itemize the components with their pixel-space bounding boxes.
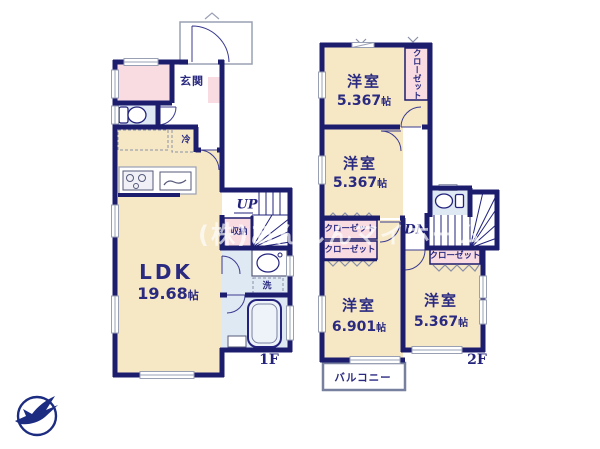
window [319, 156, 326, 184]
toilet-icon-1f [119, 107, 146, 123]
window [112, 70, 119, 98]
closet-label-3: クローゼット [429, 252, 480, 261]
window [124, 59, 158, 66]
balcony-label: バルコニー [334, 373, 391, 384]
bedroom-bottom-left-name: 洋室 [342, 299, 376, 314]
closet-label-vertical: クローゼット [412, 49, 421, 100]
ldk-size-number: 19.68 [137, 284, 188, 303]
window [287, 256, 294, 276]
stairs-up-label: UP [236, 199, 257, 212]
ldk-size: 19.68帖 [137, 286, 199, 302]
size-unit: 帖 [376, 323, 386, 334]
entrance-porch [180, 22, 252, 64]
vent-mark [352, 43, 374, 48]
floor-plan-2f [319, 37, 500, 390]
bedroom-top-name: 洋室 [347, 75, 381, 90]
stairs-down-label: DN [404, 224, 427, 237]
bedroom-bottom-left-size: 6.901帖 [332, 320, 386, 334]
shoe-closet-room [115, 62, 172, 103]
bedroom-middle-name: 洋室 [343, 157, 377, 172]
window [287, 306, 294, 340]
window [319, 296, 326, 332]
ldk-room [115, 127, 222, 375]
bedroom-middle-size: 5.367帖 [333, 176, 387, 190]
floor-tag-1f: 1F [259, 353, 279, 367]
bedroom-middle [322, 127, 403, 218]
size-number: 5.367 [414, 314, 458, 330]
ldk-size-unit: 帖 [188, 289, 199, 302]
window [112, 296, 119, 333]
window [480, 276, 487, 298]
window [112, 106, 119, 124]
floor-tag-2f: 2F [467, 353, 487, 367]
closet-label-2: クローゼット [324, 246, 375, 255]
window [480, 300, 487, 324]
window [412, 347, 462, 354]
storage-label: 収納 [230, 228, 247, 237]
window [319, 72, 326, 98]
vanity-sink-icon [252, 250, 287, 276]
toilet-door-swing [158, 107, 176, 125]
size-unit: 帖 [458, 318, 468, 329]
size-unit: 帖 [377, 179, 387, 190]
window [112, 205, 119, 237]
floor-plan-drawing [0, 0, 600, 449]
ldk-name: LDK [139, 262, 193, 282]
bird-icon [15, 396, 58, 424]
floor-plan-1f [112, 13, 294, 379]
bedroom-top-size: 5.367帖 [337, 94, 391, 108]
stove-icon [123, 171, 153, 190]
size-number: 5.367 [337, 93, 381, 109]
size-number: 6.901 [332, 319, 376, 335]
floor-plan-image: 玄関 冷 UP 収納 洗 LDK 19.68帖 1F 洋室 5.367帖 洋室 … [0, 0, 600, 449]
window [140, 372, 194, 379]
bedroom-bottom-right-size: 5.367帖 [414, 315, 468, 329]
vent-mark [205, 13, 219, 19]
bedroom-bottom-right-name: 洋室 [424, 294, 458, 309]
size-number: 5.367 [333, 175, 377, 191]
laundry-label: 洗 [262, 283, 271, 292]
closet-label-1: クローゼット [324, 225, 375, 234]
size-unit: 帖 [381, 97, 391, 108]
kitchen-sink-icon [160, 172, 191, 190]
entrance-label: 玄関 [180, 76, 204, 87]
fridge-label: 冷 [181, 137, 190, 146]
company-logo [15, 396, 58, 435]
window [350, 357, 400, 364]
bath-counter [228, 336, 246, 347]
